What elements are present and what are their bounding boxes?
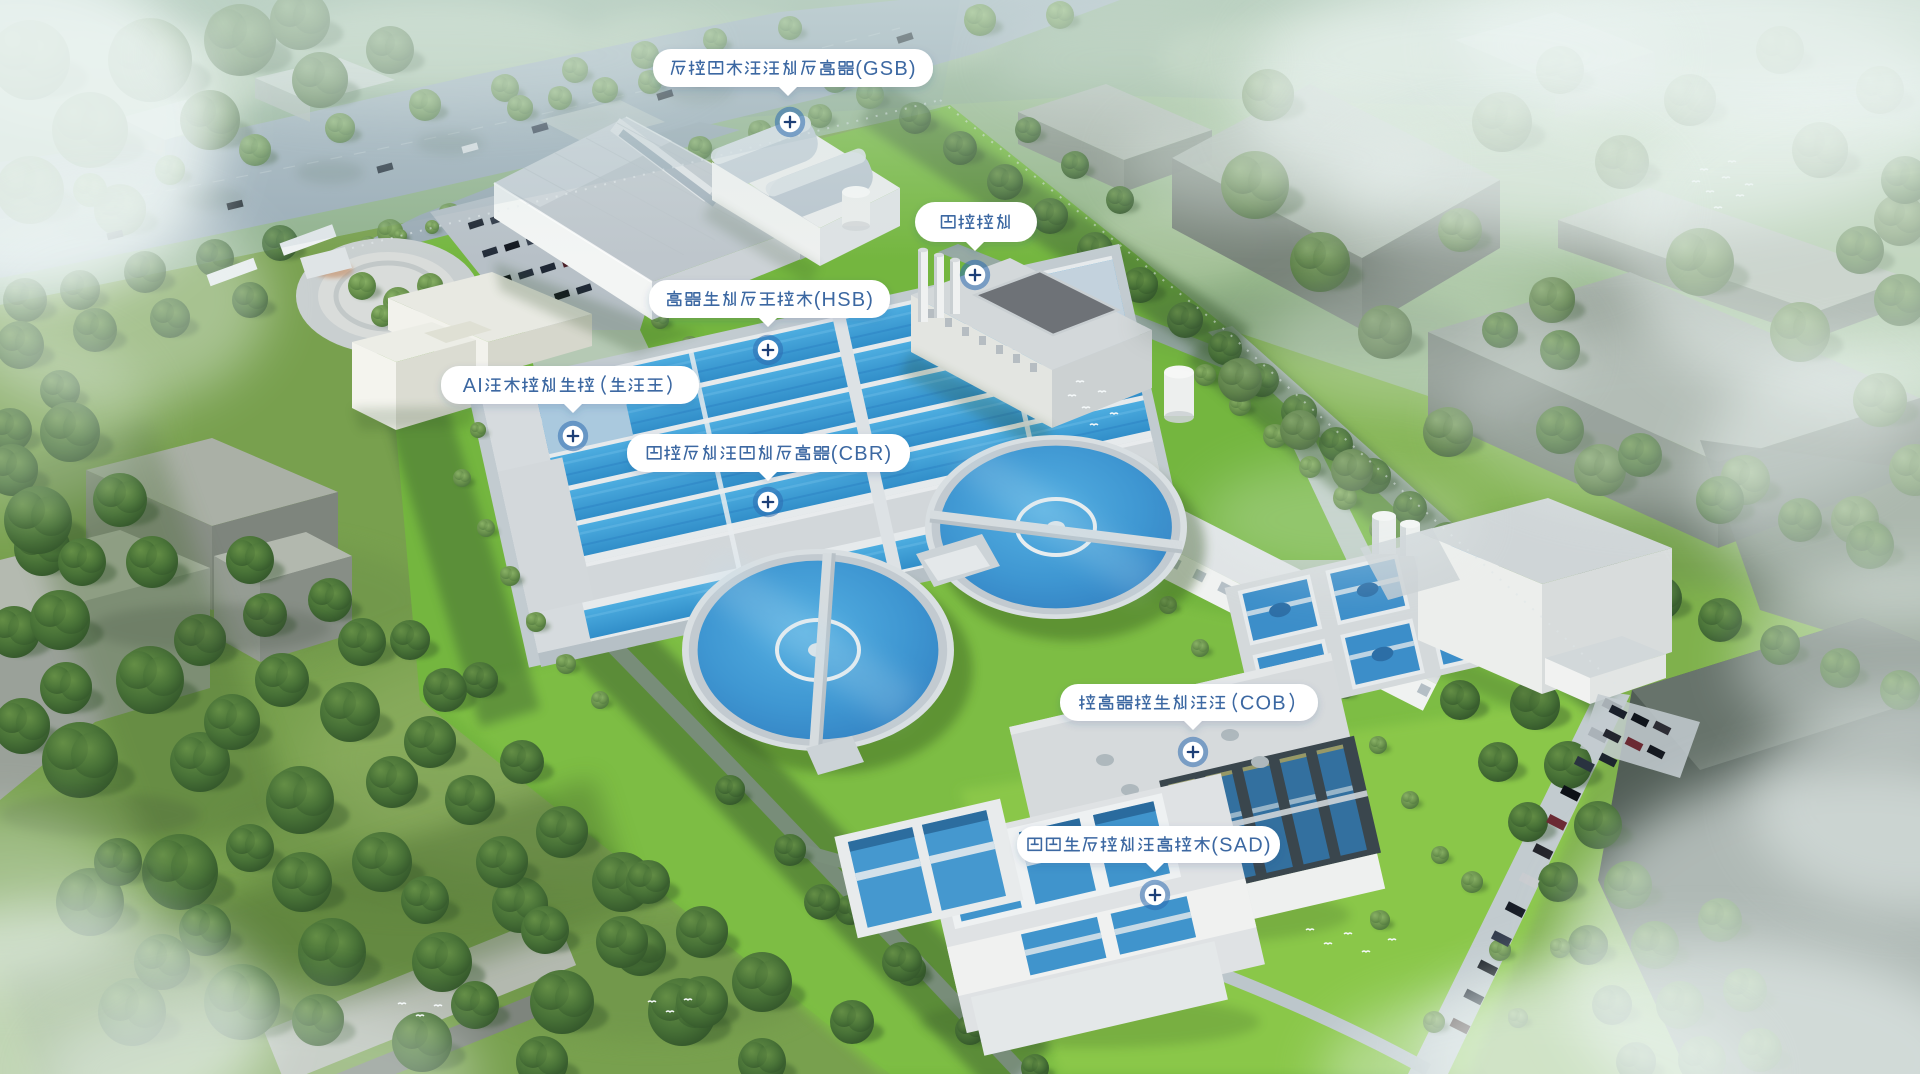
svg-text:(CBR): (CBR) — [831, 443, 893, 465]
svg-text:(HSB): (HSB) — [814, 289, 874, 311]
svg-text:COB: COB — [1240, 693, 1287, 715]
svg-text:(GSB): (GSB) — [855, 58, 917, 80]
svg-text:(SAD): (SAD) — [1211, 835, 1271, 857]
svg-text:AI: AI — [463, 375, 484, 397]
